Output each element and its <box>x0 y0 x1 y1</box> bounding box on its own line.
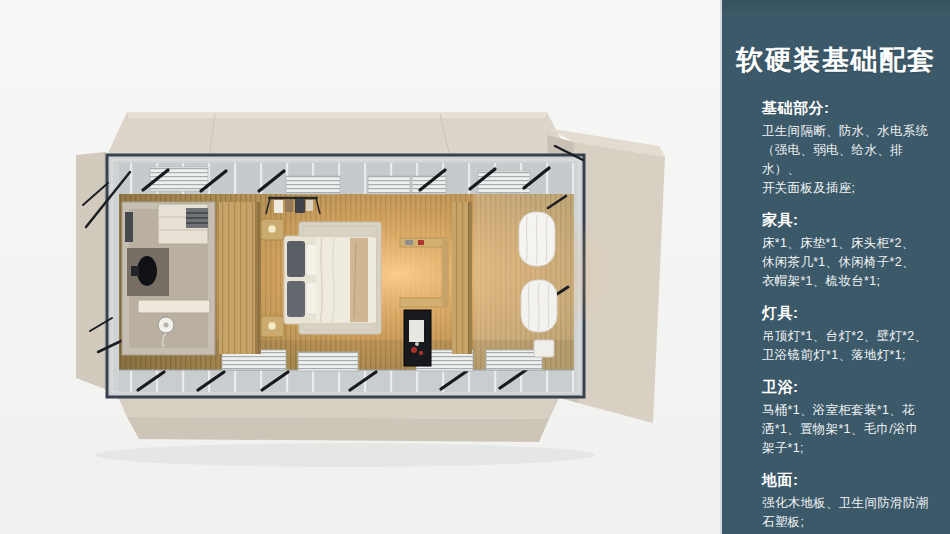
bed <box>284 222 381 334</box>
section-body: 吊顶灯*1、台灯*2、壁灯*2、 卫浴镜前灯*1、落地灯*1; <box>762 327 940 365</box>
ground-shadow <box>95 443 595 467</box>
section-body: 强化木地板、卫生间防滑防潮 石塑板; <box>762 494 940 532</box>
section-basics: 基础部分: 卫生间隔断、防水、水电系统 （强电、弱电、给水、排水）、 开关面板及… <box>762 98 940 198</box>
table-lamp <box>268 225 276 233</box>
top-wall-strip <box>119 163 574 194</box>
sink <box>137 256 157 286</box>
pillow-white <box>306 282 317 314</box>
bath-shelf <box>138 300 210 313</box>
section-furniture: 家具: 床*1、床垫*1、床头柜*2、 休闲茶几*1、休闲椅子*2、 衣帽架*1… <box>762 210 940 291</box>
tea-table <box>534 340 554 357</box>
pillow-dark <box>287 241 305 277</box>
section-heading: 地面: <box>762 470 940 490</box>
towel-rack <box>125 212 133 242</box>
throw-blanket <box>350 238 368 322</box>
section-flooring: 地面: 强化木地板、卫生间防滑防潮 石塑板; <box>762 470 940 532</box>
pillow-white <box>306 244 317 276</box>
spec-sections: 基础部分: 卫生间隔断、防水、水电系统 （强电、弱电、给水、排水）、 开关面板及… <box>722 98 950 532</box>
section-body: 马桶*1、浴室柜套装*1、花 洒*1、置物架*1、毛巾/浴巾 架子*1; <box>762 401 940 458</box>
section-lighting: 灯具: 吊顶灯*1、台灯*2、壁灯*2、 卫浴镜前灯*1、落地灯*1; <box>762 303 940 365</box>
section-heading: 基础部分: <box>762 98 940 118</box>
slide-page: 软硬装基础配套 基础部分: 卫生间隔断、防水、水电系统 （强电、弱电、给水、排水… <box>0 0 950 534</box>
floor-plan-render <box>0 0 720 534</box>
section-heading: 灯具: <box>762 303 940 323</box>
floor-plan-panel <box>0 0 720 534</box>
wardrobe <box>219 202 261 354</box>
nightstand-top <box>261 219 284 240</box>
pillow-dark <box>287 281 305 317</box>
section-body: 床*1、床垫*1、床头柜*2、 休闲茶几*1、休闲椅子*2、 衣帽架*1、梳妆台… <box>762 234 940 291</box>
faucet <box>131 266 139 276</box>
section-heading: 家具: <box>762 210 940 230</box>
bathroom <box>122 202 215 355</box>
right-partition <box>452 202 472 354</box>
nightstand-bottom <box>261 316 284 337</box>
page-title: 软硬装基础配套 <box>722 0 950 76</box>
bottom-wall-strip <box>119 370 574 392</box>
black-cabinet <box>404 310 431 366</box>
spec-sidebar: 软硬装基础配套 基础部分: 卫生间隔断、防水、水电系统 （强电、弱电、给水、排水… <box>720 0 950 534</box>
section-body: 卫生间隔断、防水、水电系统 （强电、弱电、给水、排水）、 开关面板及插座; <box>762 122 940 198</box>
section-bathroom: 卫浴: 马桶*1、浴室柜套装*1、花 洒*1、置物架*1、毛巾/浴巾 架子*1; <box>762 377 940 458</box>
section-heading: 卫浴: <box>762 377 940 397</box>
table-lamp <box>268 322 276 330</box>
